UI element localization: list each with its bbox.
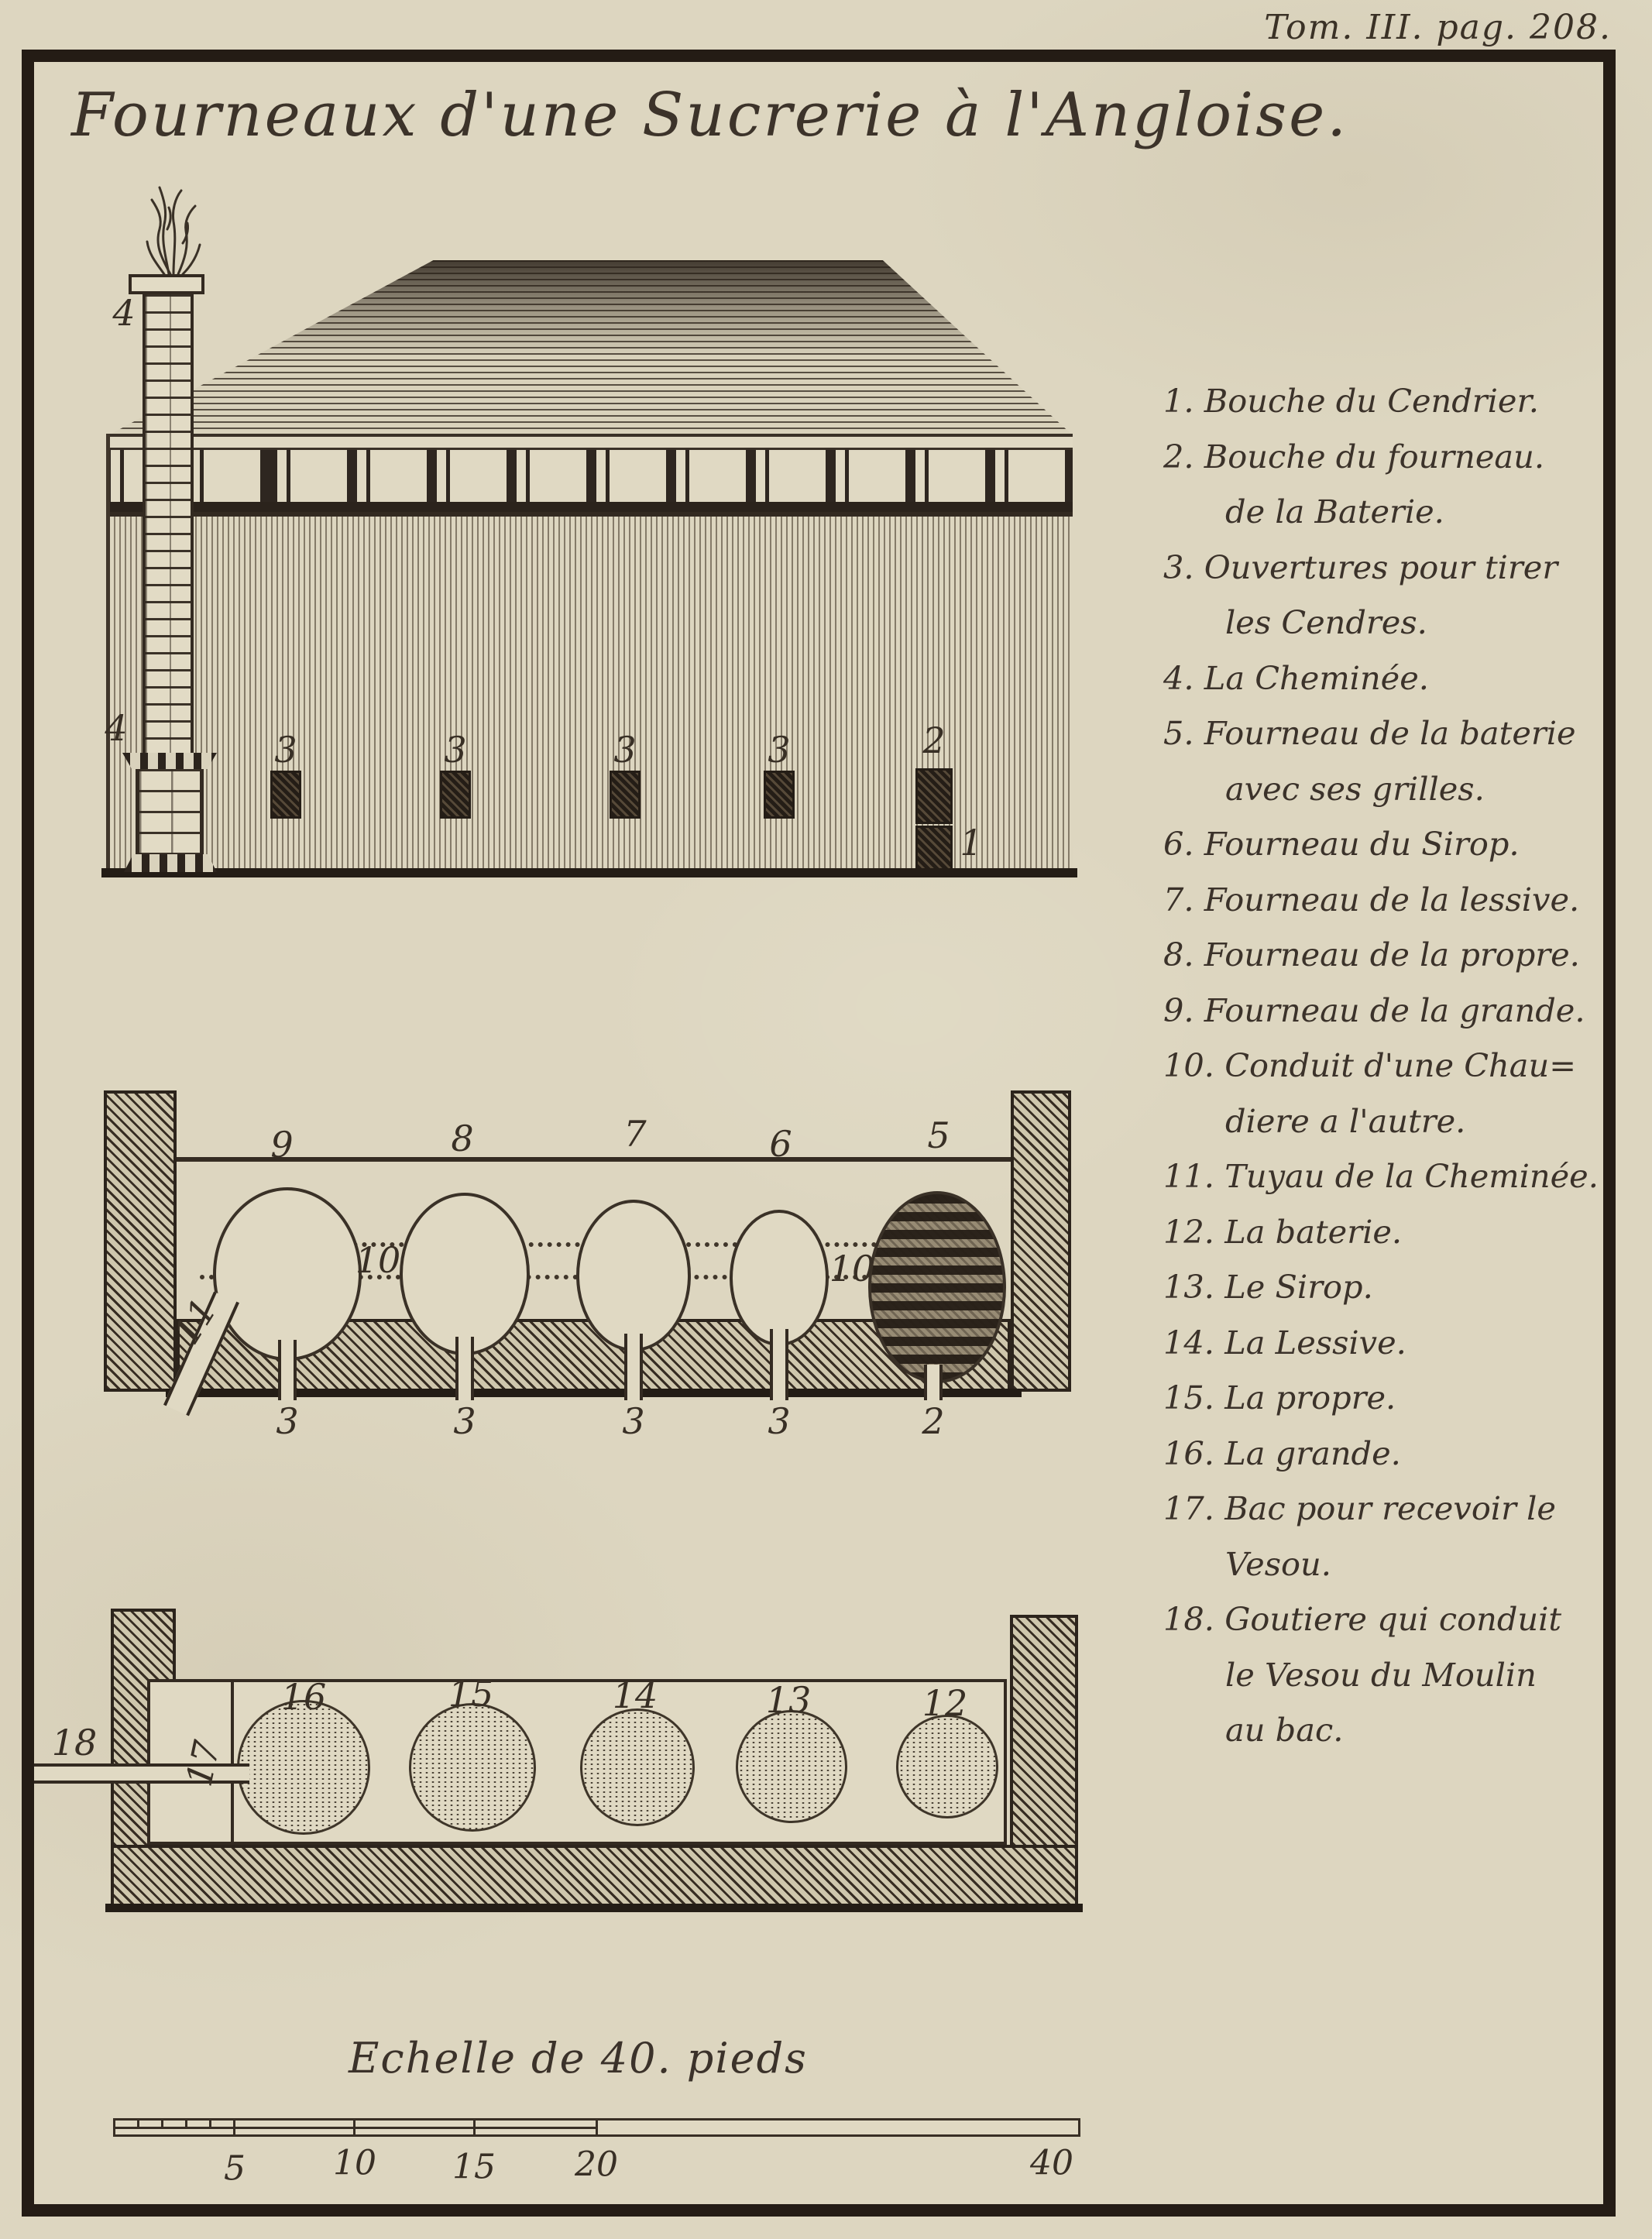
- legend-line: 13. Le Sirop.: [1163, 1259, 1609, 1315]
- chimney-pedestal: [136, 769, 204, 854]
- ash-opening: [764, 771, 795, 819]
- plan-kettle-14-lessive: [580, 1708, 695, 1826]
- chimney-cap: [129, 274, 204, 294]
- bac-partition-line: [231, 1679, 234, 1845]
- legend-line: 12. La baterie.: [1163, 1204, 1609, 1260]
- figure-number-label: 4: [105, 707, 127, 749]
- figure-number-label: 10: [829, 1248, 875, 1289]
- kettle-9-grande: [213, 1187, 362, 1361]
- figure-number-label: 3: [768, 729, 790, 771]
- legend-item: 9. Fourneau de la grande.: [1163, 983, 1609, 1039]
- figure-number-label: 3: [613, 729, 636, 771]
- legend-item: 16. La grande.: [1163, 1426, 1609, 1482]
- legend-item: 8. Fourneau de la propre.: [1163, 927, 1609, 983]
- figure-number-label: 3: [274, 729, 297, 771]
- kettle-8-propre: [400, 1193, 530, 1355]
- plan-masonry-band: [111, 1845, 1078, 1911]
- legend-line: Vesou.: [1163, 1537, 1609, 1592]
- legend-line: les Cendres.: [1163, 595, 1609, 651]
- chimney-shaft: [143, 294, 194, 753]
- legend-item: 7. Fourneau de la lessive.: [1163, 872, 1609, 928]
- legend-item: 10. Conduit d'une Chau=diere a l'autre.: [1163, 1038, 1609, 1149]
- scale-title: Echelle de 40. pieds: [349, 2034, 808, 2083]
- legend-item: 2. Bouche du fourneau.de la Baterie.: [1163, 429, 1609, 540]
- legend-item: 6. Fourneau du Sirop.: [1163, 816, 1609, 872]
- page-reference: Tom. III. pag. 208.: [1264, 8, 1612, 47]
- section-left-pier: [104, 1090, 177, 1392]
- figure-number-label: 8: [451, 1118, 473, 1159]
- figure-number-label: 2: [922, 1400, 944, 1442]
- ash-opening: [440, 771, 471, 819]
- legend-item: 11. Tuyau de la Cheminée.: [1163, 1149, 1609, 1204]
- legend-line: avec ses grilles.: [1163, 761, 1609, 817]
- section-right-pier: [1011, 1090, 1071, 1392]
- legend-line: 9. Fourneau de la grande.: [1163, 983, 1609, 1039]
- scale-subtick: [137, 2118, 139, 2128]
- eaves-band: [108, 434, 1073, 450]
- figure-number-label: 15: [452, 2148, 496, 2187]
- frame-top: [22, 50, 1616, 62]
- legend-line: 5. Fourneau de la baterie: [1163, 706, 1609, 761]
- legend-item: 18. Goutiere qui conduitle Vesou du Moul…: [1163, 1592, 1609, 1758]
- legend-line: diere a l'autre.: [1163, 1094, 1609, 1149]
- figure-number-label: 3: [276, 1400, 298, 1442]
- frame-left: [22, 50, 34, 2217]
- figure-number-label: 3: [444, 729, 466, 771]
- figure-number-label: 3: [768, 1400, 790, 1442]
- furnace-mouth: [915, 768, 953, 824]
- kettle-5-baterie-grilles: [868, 1191, 1006, 1383]
- figure-number-label: 20: [575, 2145, 618, 2185]
- legend-line: 7. Fourneau de la lessive.: [1163, 872, 1609, 928]
- figure-number-label: 6: [769, 1123, 792, 1165]
- legend-line: le Vesou du Moulin: [1163, 1647, 1609, 1703]
- plan-kettle-12-baterie: [896, 1715, 998, 1818]
- figure-number-label: 16: [281, 1676, 327, 1718]
- wall-left-edge: [106, 434, 110, 874]
- legend-line: 11. Tuyau de la Cheminée.: [1163, 1149, 1609, 1204]
- ashpit-mouth: [915, 826, 953, 872]
- figure-number-label: 5: [224, 2149, 246, 2189]
- scale-subtick: [209, 2118, 211, 2128]
- legend-line: 4. La Cheminée.: [1163, 651, 1609, 706]
- figure-number-label: 40: [1030, 2144, 1073, 2183]
- legend-item: 4. La Cheminée.: [1163, 651, 1609, 706]
- legend-line: 8. Fourneau de la propre.: [1163, 927, 1609, 983]
- scale-tick: [233, 2118, 235, 2137]
- figure-number-label: 13: [766, 1679, 812, 1721]
- scale-subtick: [161, 2118, 163, 2128]
- figure-number-label: 10: [333, 2144, 376, 2183]
- legend-line: 6. Fourneau du Sirop.: [1163, 816, 1609, 872]
- figure-number-label: 4: [112, 292, 135, 334]
- scale-tick: [596, 2118, 598, 2137]
- figure-number-label: 14: [613, 1674, 658, 1716]
- figure-number-label: 18: [52, 1722, 98, 1763]
- legend-line: de la Baterie.: [1163, 484, 1609, 540]
- legend-line: 1. Bouche du Cendrier.: [1163, 373, 1609, 429]
- legend-item: 14. La Lessive.: [1163, 1315, 1609, 1371]
- ash-opening: [610, 771, 641, 819]
- plan-band-edge: [105, 1904, 1083, 1912]
- kettle-7-lessive: [576, 1200, 691, 1351]
- figure-number-label: 15: [448, 1673, 494, 1715]
- roof: [108, 260, 1073, 435]
- plan-kettle-13-sirop: [736, 1710, 847, 1823]
- legend-line: 10. Conduit d'une Chau=: [1163, 1038, 1609, 1094]
- figure-number-label: 5: [927, 1114, 950, 1156]
- figure-number-label: 7: [623, 1113, 646, 1155]
- figure-number-label: 10: [355, 1239, 401, 1281]
- plate-title: Fourneaux d'une Sucrerie à l'Angloise.: [71, 81, 1348, 150]
- flue-channel: [455, 1337, 474, 1400]
- scale-tick: [353, 2118, 355, 2137]
- scale-tick: [473, 2118, 476, 2137]
- kettle-6-sirop: [730, 1210, 829, 1346]
- legend: 1. Bouche du Cendrier.2. Bouche du fourn…: [1163, 373, 1609, 1758]
- legend-item: 13. Le Sirop.: [1163, 1259, 1609, 1315]
- figure-number-label: 1: [960, 822, 982, 864]
- frame-bottom: [22, 2204, 1616, 2217]
- legend-line: 3. Ouvertures pour tirer: [1163, 540, 1609, 596]
- plan-kettle-15-propre: [409, 1703, 536, 1832]
- clerestory-band: [108, 450, 1073, 512]
- scale-subtick: [185, 2118, 187, 2128]
- flame-icon: [115, 177, 227, 279]
- legend-line: 18. Goutiere qui conduit: [1163, 1592, 1609, 1647]
- flue-channel: [624, 1334, 643, 1400]
- figure-number-label: 12: [922, 1682, 968, 1724]
- figure-number-label: 9: [270, 1124, 293, 1166]
- legend-line: 16. La grande.: [1163, 1426, 1609, 1482]
- legend-item: 17. Bac pour recevoir leVesou.: [1163, 1481, 1609, 1592]
- flue-channel: [924, 1365, 943, 1400]
- legend-item: 12. La baterie.: [1163, 1204, 1609, 1260]
- legend-item: 5. Fourneau de la baterieavec ses grille…: [1163, 706, 1609, 816]
- legend-item: 15. La propre.: [1163, 1370, 1609, 1426]
- plan-kettle-16-grande: [237, 1700, 370, 1835]
- legend-line: au bac.: [1163, 1702, 1609, 1758]
- gutter-channel-stub: [232, 1763, 249, 1784]
- ground-line: [101, 868, 1077, 877]
- legend-item: 3. Ouvertures pour tirerles Cendres.: [1163, 540, 1609, 651]
- masonry-top-line: [177, 1157, 1011, 1162]
- ash-opening: [270, 771, 301, 819]
- engraved-plate: Tom. III. pag. 208. Fourneaux d'une Sucr…: [0, 0, 1652, 2239]
- flue-channel: [278, 1340, 297, 1400]
- chimney-base: [124, 854, 217, 872]
- flue-channel: [770, 1329, 788, 1400]
- figure-number-label: 3: [622, 1400, 644, 1442]
- legend-line: 17. Bac pour recevoir le: [1163, 1481, 1609, 1537]
- legend-item: 1. Bouche du Cendrier.: [1163, 373, 1609, 429]
- legend-line: 15. La propre.: [1163, 1370, 1609, 1426]
- figure-number-label: 2: [922, 719, 945, 761]
- legend-line: 2. Bouche du fourneau.: [1163, 429, 1609, 485]
- figure-number-label: 3: [453, 1400, 476, 1442]
- chimney-corbel: [122, 753, 217, 769]
- legend-line: 14. La Lessive.: [1163, 1315, 1609, 1371]
